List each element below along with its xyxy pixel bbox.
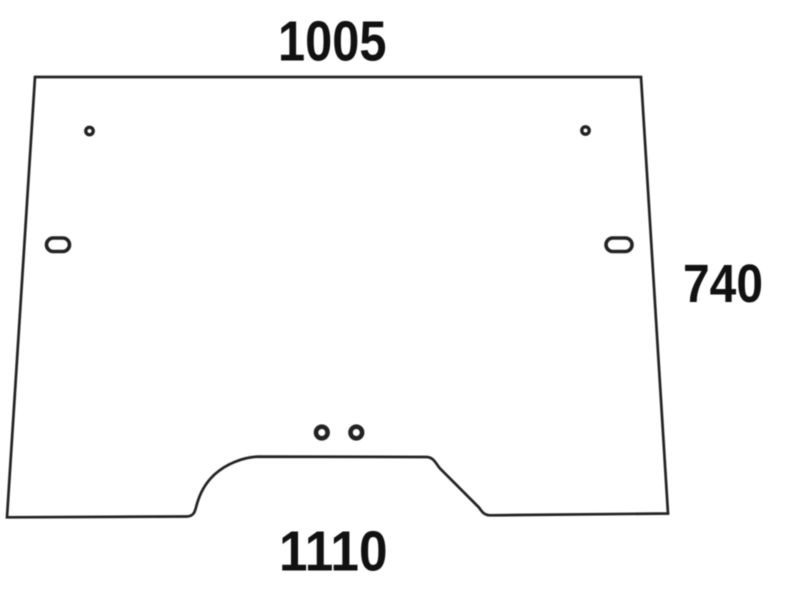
svg-text:1110: 1110 xyxy=(279,520,388,584)
svg-text:740: 740 xyxy=(683,254,763,314)
svg-text:1005: 1005 xyxy=(278,10,387,74)
